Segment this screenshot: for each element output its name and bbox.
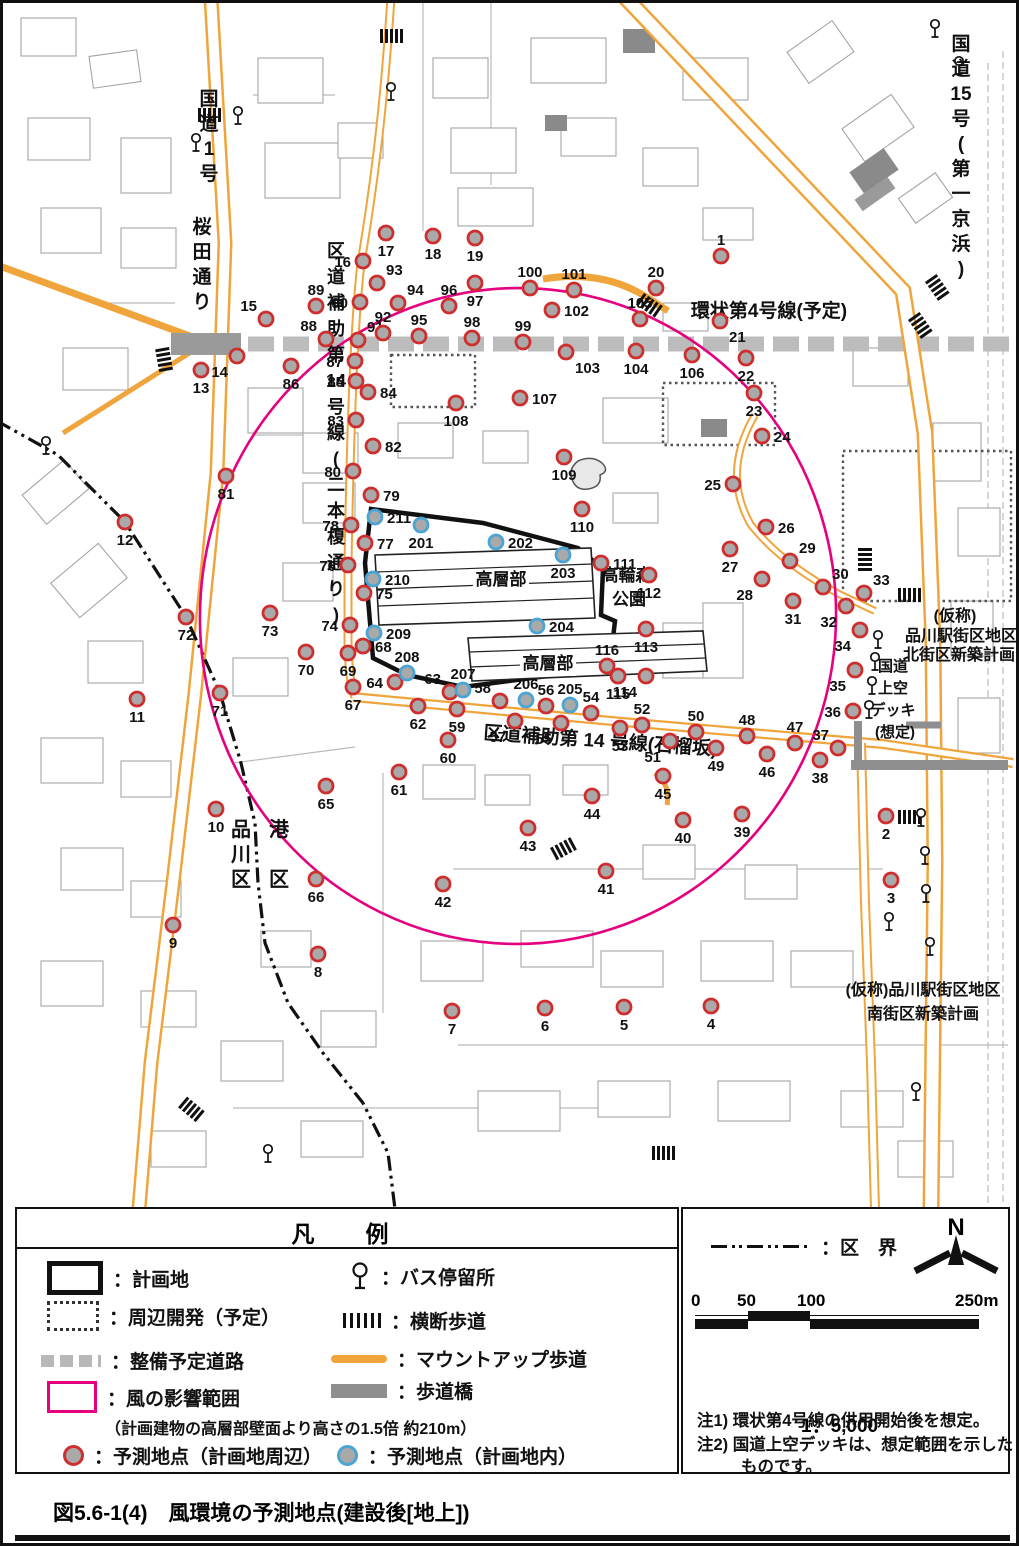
prediction-point-outside-8: 8	[311, 947, 325, 981]
prediction-point-outside-42: 42	[435, 877, 452, 911]
legend-label: ：計画地	[113, 1265, 189, 1292]
bus-stop-icon	[912, 1083, 920, 1100]
legend-label: ：予測地点（計画地周辺）	[94, 1442, 322, 1469]
scale-tick: 50	[737, 1291, 756, 1311]
point-number: 7	[448, 1021, 456, 1038]
point-number: 102	[564, 303, 589, 320]
prediction-point-inside-202: 202	[489, 535, 533, 552]
prediction-point-outside-7: 7	[445, 1004, 459, 1038]
point-number: 62	[410, 716, 427, 733]
point-number: 30	[832, 566, 849, 583]
prediction-point-outside-45: 45	[655, 769, 672, 803]
legend-item-point-outside: ：予測地点（計画地周辺）	[63, 1442, 322, 1469]
point-number: 103	[575, 360, 600, 377]
prediction-point-outside-89: 89	[308, 282, 325, 313]
point-number: 201	[408, 535, 433, 552]
note-2b: ものです。	[741, 1453, 822, 1477]
point-number: 205	[557, 681, 582, 698]
legend-title: 凡 例	[17, 1215, 677, 1249]
figure-caption-bar: 図5.6-1(4) 風環境の予測地点(建設後[地上])	[15, 1489, 1010, 1541]
legend-label: ：予測地点（計画地内）	[368, 1442, 577, 1469]
map-label-highrise-lower: 高層部	[523, 653, 574, 673]
prediction-point-outside-74: 74	[321, 618, 357, 635]
point-number: 85	[327, 374, 344, 391]
point-number: 100	[517, 264, 542, 281]
prediction-point-outside-72: 72	[178, 610, 195, 644]
prediction-point-inside-211: 211	[368, 510, 411, 527]
scale-tick: 0	[691, 1291, 700, 1311]
crosswalk-mark	[925, 274, 950, 301]
point-number: 26	[778, 520, 795, 537]
surrounding-dev-swatch	[47, 1301, 99, 1331]
map-label-deck-3: デッキ	[870, 701, 915, 719]
legend-item-plan-site: ：計画地	[47, 1261, 189, 1295]
bus-stop-icon	[874, 631, 882, 648]
legend-label: ：風の影響範囲	[107, 1384, 240, 1411]
footbridge-icon	[331, 1384, 387, 1398]
point-number: 25	[704, 477, 721, 494]
point-number: 92	[375, 309, 392, 326]
bus-stop-icon	[349, 1261, 371, 1291]
map-area: 環状第4号線(予定)区道補助第 14 号線(石榴坂)高層部高層部高輪森公園(仮称…	[3, 3, 1016, 1207]
point-number: 88	[300, 318, 317, 335]
point-number: 101	[561, 266, 586, 283]
bus-stop-icon	[42, 437, 50, 454]
legend-item-footbridge: ：歩道橋	[331, 1377, 473, 1404]
point-number: 105	[627, 295, 652, 312]
point-number: 20	[648, 264, 665, 281]
map-label-shinagawa-ku: 区	[231, 869, 251, 891]
legend-label: ：歩道橋	[397, 1377, 473, 1404]
point-number: 107	[532, 391, 557, 408]
point-number: 46	[759, 764, 776, 781]
point-number: 113	[634, 639, 658, 656]
ward-boundary-swatch	[711, 1245, 811, 1248]
point-number: 96	[441, 282, 458, 299]
point-number: 5	[620, 1017, 628, 1034]
point-number: 210	[385, 572, 410, 589]
prediction-point-outside-19: 19	[467, 231, 484, 265]
prediction-point-inside-209: 209	[367, 626, 411, 643]
scale-tick: 100	[797, 1291, 825, 1311]
prediction-point-outside-20: 20	[648, 264, 665, 295]
map-label-route15: 道	[951, 57, 970, 80]
point-number: 93	[386, 262, 403, 279]
prediction-point-outside-83: 83	[327, 413, 363, 430]
prediction-point-outside-35: 35	[829, 663, 862, 695]
prediction-point-outside-106: 106	[679, 348, 704, 382]
wind-range-note: （計画建物の高層部壁面より高さの1.5倍 約210m）	[105, 1415, 476, 1439]
map-label-minami-block-2: 南街区新築計画	[867, 1004, 979, 1023]
point-number: 67	[345, 697, 362, 714]
point-number: 64	[366, 675, 383, 692]
point-number: 111	[613, 556, 636, 573]
map-label-route1: 号	[199, 163, 218, 185]
point-number: 89	[308, 282, 325, 299]
point-number: 209	[386, 626, 411, 643]
prediction-point-outside-97: 97	[467, 276, 484, 310]
point-number: 73	[262, 623, 279, 640]
prediction-point-outside-24: 24	[755, 429, 791, 446]
prediction-point-outside-43: 43	[520, 821, 537, 855]
scale-tick: 250m	[955, 1291, 998, 1311]
prediction-point-outside-69: 69	[340, 646, 357, 680]
prediction-point-outside-62: 62	[410, 699, 427, 733]
point-number: 211	[387, 510, 411, 527]
prediction-point-outside-47: 47	[787, 719, 804, 750]
map-label-route15: (	[958, 134, 965, 155]
point-number: 108	[443, 413, 468, 430]
point-number: 33	[873, 572, 890, 589]
point-number: 21	[729, 329, 746, 346]
prediction-point-outside-105: 105	[627, 295, 652, 326]
prediction-point-outside-82: 82	[366, 439, 402, 456]
bus-stop-icon	[192, 134, 200, 151]
map-label-route1: 1	[204, 139, 215, 160]
prediction-point-outside-5: 5	[617, 1000, 631, 1034]
map-label-kita-block-1: (仮称)	[934, 606, 977, 625]
point-number: 41	[598, 881, 615, 898]
crosswalk-mark	[178, 1097, 205, 1123]
prediction-point-outside-3: 3	[884, 873, 898, 907]
crosswalk-mark	[858, 548, 872, 571]
point-number: 23	[746, 403, 763, 420]
crosswalk-icon	[343, 1313, 381, 1328]
point-number: 95	[411, 312, 428, 329]
point-number: 63	[424, 671, 441, 688]
prediction-point-outside-70: 70	[298, 645, 315, 679]
prediction-point-inside-205: 205	[557, 681, 582, 712]
point-number: 207	[450, 666, 475, 683]
prediction-point-outside-13: 13	[193, 363, 210, 397]
north-arrow: N	[911, 1213, 1001, 1277]
prediction-point-inside-204: 204	[530, 619, 575, 636]
map-label-route15: 国	[951, 33, 970, 55]
prediction-point-outside-36: 36	[824, 704, 860, 721]
legend-box: 凡 例 ：計画地 ：周辺開発（予定） ：整備予定道路 ：風の影響範囲 （計画建物…	[15, 1207, 679, 1474]
note-1: 注1) 環状第4号線の供用開始後を想定。	[697, 1407, 989, 1431]
map-label-sakurada-dori: 通	[192, 266, 212, 288]
point-number: 112	[637, 585, 661, 602]
point-number: 53	[612, 738, 629, 755]
map-label-highrise-upper: 高層部	[476, 569, 527, 589]
legend-item-planned-road: ：整備予定道路	[41, 1347, 244, 1374]
point-number: 40	[675, 830, 692, 847]
prediction-point-outside-33: 33	[857, 572, 890, 600]
map-label-sakurada-dori: 田	[192, 242, 211, 263]
point-number: 78	[322, 518, 339, 535]
legend-item-mountup: ：マウントアップ歩道	[331, 1345, 587, 1372]
prediction-point-outside-16: 16	[334, 254, 370, 271]
plan-site-swatch	[47, 1261, 103, 1295]
point-number: 87	[326, 354, 343, 371]
prediction-point-outside-52: 52	[634, 701, 651, 732]
prediction-point-outside-108: 108	[443, 396, 468, 430]
point-number: 90	[331, 295, 348, 312]
legend-item-crosswalk: ：横断歩道	[343, 1307, 486, 1334]
prediction-point-outside-53: 53	[612, 721, 629, 755]
prediction-point-outside-81: 81	[218, 469, 235, 503]
point-number: 29	[799, 540, 816, 557]
prediction-point-outside-61: 61	[391, 765, 408, 799]
point-number: 203	[550, 565, 575, 582]
prediction-point-outside-27: 27	[722, 542, 739, 576]
prediction-point-outside-109: 109	[551, 450, 576, 484]
prediction-point-outside-65: 65	[318, 779, 335, 813]
figure-wind-prediction-map: 環状第4号線(予定)区道補助第 14 号線(石榴坂)高層部高層部高輪森公園(仮称…	[0, 0, 1019, 1546]
prediction-point-outside-60: 60	[440, 733, 457, 767]
point-number: 3	[887, 890, 895, 907]
prediction-point-outside-26: 26	[759, 520, 795, 537]
point-number: 66	[308, 889, 325, 906]
legend-label: ：整備予定道路	[111, 1347, 244, 1374]
prediction-point-outside-113: 113	[634, 622, 658, 656]
point-number: 54	[583, 689, 600, 706]
prediction-point-outside-54: 54	[583, 689, 600, 720]
point-number: 31	[785, 611, 802, 628]
prediction-point-outside-18: 18	[425, 229, 442, 263]
point-number: 11	[129, 709, 145, 726]
point-number: 28	[736, 587, 753, 604]
prediction-point-outside-92: 92	[375, 309, 392, 340]
map-label-route15: 15	[950, 84, 972, 105]
map-label-route15: 号	[951, 108, 970, 130]
prediction-point-outside-15: 15	[240, 298, 273, 326]
note-2: 注2) 国道上空デッキは、想定範囲を示した	[697, 1431, 1013, 1455]
point-number: 50	[688, 708, 705, 725]
figure-caption: 図5.6-1(4) 風環境の予測地点(建設後[地上])	[53, 1497, 470, 1527]
bus-stop-icon	[885, 913, 893, 930]
point-number: 116	[595, 642, 619, 659]
point-number: 70	[298, 662, 315, 679]
point-number: 6	[541, 1018, 549, 1035]
point-number: 84	[380, 385, 397, 402]
prediction-point-outside-86: 86	[283, 359, 300, 393]
prediction-point-outside-39: 39	[734, 807, 751, 841]
point-number: 13	[193, 380, 210, 397]
map-label-deck-4: (想定)	[875, 723, 915, 741]
bus-stop-icon	[868, 677, 876, 694]
prediction-point-outside-71: 71	[212, 686, 229, 720]
prediction-point-outside-110: 110	[570, 502, 594, 536]
point-number: 99	[515, 318, 532, 335]
prediction-point-outside-37: 37	[812, 727, 845, 755]
point-number: 208	[394, 649, 419, 666]
point-number: 60	[440, 750, 457, 767]
point-number: 82	[385, 439, 402, 456]
legend-item-surrounding-dev: ：周辺開発（予定）	[47, 1301, 280, 1331]
crosswalk-mark	[652, 1146, 675, 1160]
point-number: 18	[425, 246, 442, 263]
map-label-sakurada-dori: り	[192, 292, 211, 313]
point-number: 27	[722, 559, 739, 576]
point-number: 52	[634, 701, 651, 718]
bus-stop-icon	[931, 20, 939, 37]
map-label-deck-2: 上空	[878, 679, 908, 697]
map-label-kita-block-2: 品川駅街区地区	[905, 626, 1016, 645]
point-number: 98	[464, 314, 481, 331]
point-number: 69	[340, 663, 357, 680]
map-canvas: 環状第4号線(予定)区道補助第 14 号線(石榴坂)高層部高層部高輪森公園(仮称…	[3, 3, 1016, 1207]
point-number: 115	[606, 686, 630, 703]
prediction-point-outside-67: 67	[345, 680, 362, 714]
point-number: 110	[570, 519, 594, 536]
prediction-point-outside-29: 29	[783, 540, 816, 568]
legend-label: ：区 界	[821, 1233, 897, 1260]
map-label-route15: 京	[951, 207, 970, 230]
prediction-point-outside-6: 6	[538, 1001, 552, 1035]
prediction-point-outside-17: 17	[378, 226, 395, 260]
point-number: 15	[240, 298, 257, 315]
point-number: 16	[334, 254, 351, 271]
prediction-point-outside-50: 50	[688, 708, 705, 739]
legend-item-ward-boundary: ：区 界	[711, 1233, 897, 1260]
point-number: 38	[812, 770, 829, 787]
point-number: 65	[318, 796, 335, 813]
prediction-point-outside-48: 48	[739, 712, 756, 743]
legend-label: ：周辺開発（予定）	[109, 1303, 280, 1330]
prediction-point-outside-66: 66	[308, 872, 325, 906]
point-number: 37	[812, 727, 829, 744]
point-number: 10	[208, 819, 225, 836]
map-label-route1: 国	[199, 88, 218, 110]
point-number: 4	[707, 1016, 716, 1033]
map-label-route1: 道	[199, 112, 218, 135]
point-number: 55	[535, 731, 552, 748]
point-inside-swatch	[337, 1445, 358, 1466]
point-number: 34	[834, 638, 851, 655]
point-number: 202	[508, 535, 533, 552]
map-label-minami-block-1: (仮称)品川駅街区地区	[846, 980, 1001, 999]
prediction-point-outside-49: 49	[708, 741, 725, 775]
legend-item-bus-stop: ：バス停留所	[349, 1261, 495, 1291]
point-number: 61	[391, 782, 408, 799]
wind-range-swatch	[47, 1381, 97, 1413]
point-number: 49	[708, 758, 725, 775]
point-number: 48	[739, 712, 756, 729]
prediction-point-outside-28: 28	[736, 572, 769, 604]
prediction-point-outside-102: 102	[545, 303, 589, 320]
point-number: 43	[520, 838, 537, 855]
map-label-deck-1: 国道	[878, 657, 908, 675]
prediction-point-outside-38: 38	[812, 753, 829, 787]
map-label-minato-ku: 港	[269, 817, 290, 841]
bus-stop-icon	[234, 107, 242, 124]
point-number: 80	[324, 464, 341, 481]
legend-box-right: ：区 界 N 0 50 100 250m 1：5,000 注1) 環状第4号線の…	[681, 1207, 1010, 1474]
planned-road-swatch	[41, 1355, 101, 1367]
point-number: 19	[467, 248, 484, 265]
point-number: 71	[212, 703, 229, 720]
prediction-point-outside-73: 73	[262, 606, 279, 640]
point-number: 94	[407, 282, 424, 299]
point-number: 109	[551, 467, 576, 484]
prediction-point-outside-77: 77	[358, 536, 394, 553]
point-number: 14	[211, 364, 228, 381]
point-number: 57	[489, 729, 506, 746]
point-number: 36	[824, 704, 841, 721]
prediction-point-inside-206: 206	[513, 676, 538, 707]
point-number: 97	[467, 293, 484, 310]
prediction-point-outside-46: 46	[759, 747, 776, 781]
legend-label: ：バス停留所	[381, 1263, 495, 1290]
map-label-route15: 第	[951, 157, 970, 180]
map-label-route15: 浜	[951, 233, 970, 255]
prediction-point-outside-59: 59	[449, 702, 466, 736]
point-number: 74	[321, 618, 338, 635]
point-number: 47	[787, 719, 804, 736]
prediction-point-inside-210: 210	[366, 572, 410, 589]
point-number: 104	[623, 361, 649, 378]
point-number: 22	[738, 368, 755, 385]
point-number: 39	[734, 824, 751, 841]
bus-stop-icon	[264, 1145, 272, 1162]
legend-item-point-inside: ：予測地点（計画地内）	[337, 1442, 577, 1469]
prediction-point-outside-4: 4	[704, 999, 718, 1033]
map-label-minato-ku: 区	[269, 869, 289, 891]
point-number: 24	[774, 429, 791, 446]
point-number: 42	[435, 894, 452, 911]
point-number: 86	[283, 376, 300, 393]
map-label-shinagawa-ku: 品	[231, 818, 251, 841]
prediction-point-outside-34: 34	[834, 623, 867, 655]
point-number: 9	[169, 935, 177, 952]
point-number: 204	[549, 619, 575, 636]
map-label-kita-block-3: 北街区新築計画	[903, 645, 1015, 664]
prediction-point-outside-95: 95	[411, 312, 428, 343]
point-number: 76	[319, 558, 336, 575]
point-number: 2	[882, 826, 890, 843]
point-number: 58	[474, 680, 491, 697]
mountup-walkway-icon	[331, 1355, 387, 1363]
point-number: 83	[327, 413, 344, 430]
prediction-point-outside-2: 2	[879, 809, 893, 843]
map-label-nihon-enoki: り	[327, 579, 345, 599]
prediction-point-outside-9: 9	[166, 918, 180, 952]
point-number: 106	[679, 365, 704, 382]
prediction-point-outside-25: 25	[704, 477, 740, 494]
prediction-point-outside-111: 111	[594, 556, 636, 573]
point-number: 8	[314, 964, 322, 981]
point-number: 32	[820, 614, 837, 631]
prediction-point-outside-79: 79	[364, 488, 400, 505]
point-number: 206	[513, 676, 538, 693]
legend-divider	[17, 1247, 677, 1249]
point-number: 79	[383, 488, 400, 505]
legend-item-wind-range: ：風の影響範囲	[47, 1381, 240, 1413]
prediction-point-inside-201: 201	[408, 518, 433, 552]
prediction-point-outside-10: 10	[208, 802, 225, 836]
prediction-point-outside-64: 64	[366, 675, 402, 692]
prediction-point-outside-90: 90	[331, 295, 367, 312]
crosswalk-mark	[550, 837, 577, 860]
map-label-route15: 一	[951, 184, 970, 205]
legend-label: ：マウントアップ歩道	[397, 1345, 587, 1372]
map-label-route15: )	[958, 259, 964, 280]
point-number: 45	[655, 786, 672, 803]
prediction-point-outside-12: 12	[117, 515, 134, 549]
point-number: 1	[717, 232, 725, 249]
prediction-point-outside-56: 56	[538, 682, 555, 713]
scale-bar: 0 50 100 250m 1：5,000	[691, 1291, 991, 1351]
prediction-point-outside-41: 41	[598, 864, 615, 898]
prediction-point-outside-96: 96	[441, 282, 458, 313]
point-number: 44	[584, 806, 601, 823]
prediction-point-outside-107: 107	[513, 391, 557, 408]
point-number: 77	[377, 536, 394, 553]
map-label-shinagawa-ku: 川	[230, 844, 251, 866]
prediction-point-outside-22: 22	[738, 351, 755, 385]
